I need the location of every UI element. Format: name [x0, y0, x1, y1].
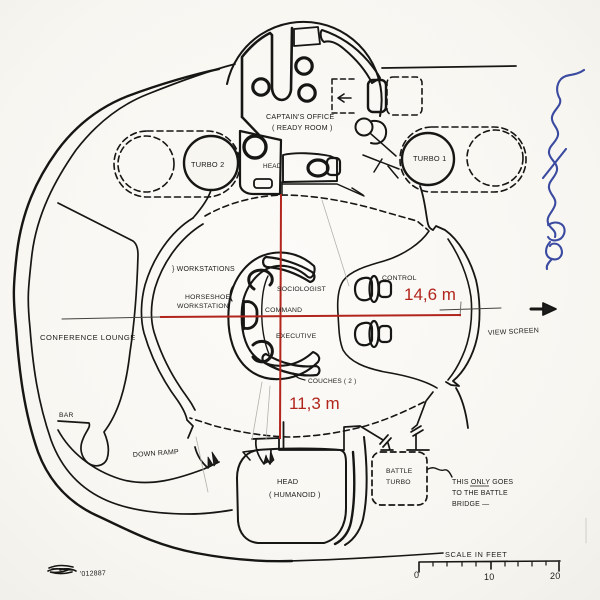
svg-text:BAR: BAR — [59, 412, 74, 419]
svg-text:( HUMANOID ): ( HUMANOID ) — [269, 490, 321, 499]
svg-text:'012887: '012887 — [80, 570, 106, 578]
svg-text:14,6 m: 14,6 m — [404, 285, 456, 304]
svg-text:TURBO 2: TURBO 2 — [191, 160, 224, 169]
svg-text:SOCIOLOGIST: SOCIOLOGIST — [277, 286, 326, 293]
svg-text:10: 10 — [484, 572, 494, 582]
svg-text:CAPTAIN'S OFFICE: CAPTAIN'S OFFICE — [266, 112, 334, 121]
svg-text:20: 20 — [550, 571, 560, 581]
svg-text:HORSESHOE: HORSESHOE — [185, 294, 230, 301]
svg-text:0: 0 — [414, 570, 419, 580]
svg-text:TO THE BATTLE: TO THE BATTLE — [452, 490, 508, 497]
svg-text:11,3 m: 11,3 m — [289, 394, 340, 413]
svg-text:TURBO 1: TURBO 1 — [413, 154, 446, 163]
svg-text:COMMAND: COMMAND — [265, 307, 302, 314]
svg-text:( READY ROOM ): ( READY ROOM ) — [272, 123, 333, 132]
svg-text:HEAD: HEAD — [277, 477, 298, 486]
svg-text:THIS ONLY GOES: THIS ONLY GOES — [452, 479, 513, 486]
svg-text:BATTLE: BATTLE — [386, 468, 413, 475]
svg-text:SCALE IN FEET: SCALE IN FEET — [445, 550, 507, 559]
svg-text:TURBO: TURBO — [386, 479, 411, 486]
svg-text:HEAD: HEAD — [263, 163, 282, 170]
svg-text:WORKSTATION: WORKSTATION — [177, 303, 229, 310]
svg-text:COUCHES ( 2 ): COUCHES ( 2 ) — [308, 378, 356, 385]
svg-text:EXECUTIVE: EXECUTIVE — [276, 333, 317, 340]
svg-text:CONFERENCE LOUNGE: CONFERENCE LOUNGE — [40, 333, 136, 342]
svg-text:} WORKSTATIONS: } WORKSTATIONS — [172, 266, 235, 273]
svg-text:BRIDGE —: BRIDGE — — [452, 501, 489, 508]
svg-text:CONTROL: CONTROL — [382, 275, 417, 282]
